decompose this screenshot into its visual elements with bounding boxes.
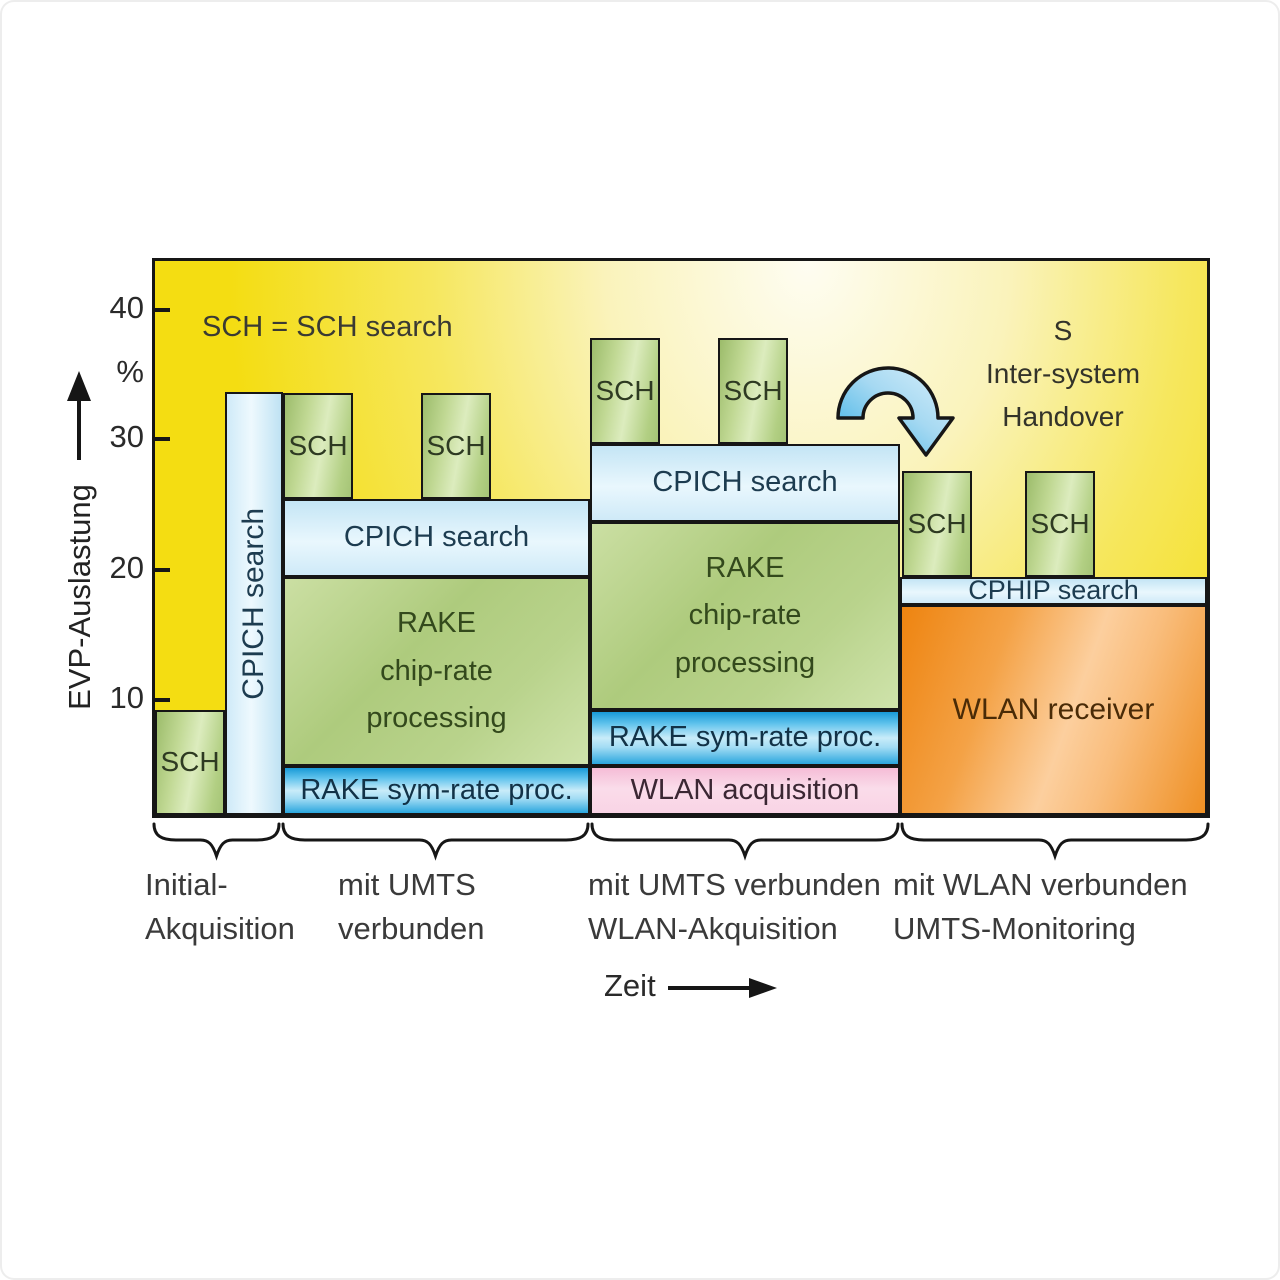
phase-caption-3: mit UMTS verbunden WLAN-Akquisition: [588, 863, 881, 951]
y-axis-title: EVP-Auslastung: [62, 484, 98, 710]
block-wlan-receiver: WLAN receiver: [900, 605, 1207, 815]
rake-line2: chip-rate: [675, 599, 815, 632]
rake-line2: chip-rate: [366, 655, 506, 688]
diagram-canvas: 40 % 30 20 10 EVP-Auslastung SCH = SCH s…: [0, 0, 1280, 1280]
block-wlan-acquisition: WLAN acquisition: [590, 766, 900, 815]
time-arrow-icon: [664, 974, 784, 1002]
plot-area: SCH = SCH search SCH CPICH search SCH SC…: [152, 258, 1210, 818]
legend-note: SCH = SCH search: [202, 311, 453, 344]
y-tick-10: [155, 698, 170, 702]
block-label: SCH: [1030, 508, 1089, 540]
caption-line: verbunden: [338, 907, 485, 951]
block-label: SCH: [288, 430, 347, 462]
y-tick-40: [155, 308, 170, 312]
block-sch-umts-1: SCH: [283, 393, 353, 499]
y-tick-label-40: 40: [84, 290, 144, 326]
block-sch-monitoring-2: SCH: [1025, 471, 1095, 577]
block-sch-monitoring-1: SCH: [902, 471, 972, 577]
handover-line-3: Handover: [913, 395, 1213, 438]
block-label: WLAN acquisition: [631, 774, 860, 807]
block-label: WLAN receiver: [953, 693, 1155, 728]
rake-line1: RAKE: [675, 552, 815, 585]
y-tick-30: [155, 437, 170, 441]
caption-line: WLAN-Akquisition: [588, 907, 881, 951]
caption-line: mit WLAN verbunden: [893, 863, 1188, 907]
block-cphip-search: CPHIP search: [900, 577, 1207, 605]
brace-umts-monitoring: [902, 824, 1208, 856]
block-cpich-search-vertical: CPICH search: [225, 392, 283, 815]
block-label: RAKE sym-rate proc.: [300, 774, 572, 807]
handover-line-1: S: [913, 309, 1213, 352]
brace-wlan-akquisition: [592, 824, 898, 856]
caption-line: mit UMTS verbunden: [588, 863, 881, 907]
block-sch-wlanacq-2: SCH: [718, 338, 788, 444]
x-axis-title: Zeit: [604, 968, 656, 1004]
block-label: SCH: [907, 508, 966, 540]
phase-caption-4: mit WLAN verbunden UMTS-Monitoring: [893, 863, 1188, 951]
y-tick-20: [155, 568, 170, 572]
block-cpich-search-umts: CPICH search: [283, 499, 590, 577]
block-label: CPICH search: [344, 521, 529, 554]
rake-line1: RAKE: [366, 607, 506, 640]
y-axis-arrow-icon: [64, 368, 94, 464]
block-sch-initial: SCH: [155, 710, 225, 815]
phase-caption-1: Initial- Akquisition: [145, 863, 295, 951]
block-rake-chip-rate-wlanacq: RAKE chip-rate processing: [590, 522, 900, 710]
block-rake-sym-rate-wlanacq: RAKE sym-rate proc.: [590, 710, 900, 766]
block-rake-chip-rate-umts: RAKE chip-rate processing: [283, 577, 590, 766]
brace-initial-akquisition: [154, 824, 279, 856]
brace-umts-verbunden: [283, 824, 588, 856]
caption-line: Initial-: [145, 863, 295, 907]
block-label: RAKE chip-rate processing: [675, 552, 815, 680]
block-label: RAKE chip-rate processing: [366, 607, 506, 735]
phase-caption-2: mit UMTS verbunden: [338, 863, 485, 951]
caption-line: Akquisition: [145, 907, 295, 951]
block-sch-umts-2: SCH: [421, 393, 491, 499]
handover-note: S Inter-system Handover: [913, 309, 1213, 438]
rake-line3: processing: [366, 702, 506, 735]
block-label: CPHIP search: [968, 575, 1139, 606]
handover-line-2: Inter-system: [913, 352, 1213, 395]
block-label: RAKE sym-rate proc.: [609, 721, 881, 754]
block-label: SCH: [426, 430, 485, 462]
block-label: SCH: [723, 375, 782, 407]
block-label: CPICH search: [237, 508, 272, 700]
block-label: CPICH search: [652, 466, 837, 499]
block-label: SCH: [160, 746, 219, 778]
caption-line: UMTS-Monitoring: [893, 907, 1188, 951]
phase-braces: [152, 820, 1210, 862]
block-rake-sym-rate-umts: RAKE sym-rate proc.: [283, 766, 590, 815]
rake-line3: processing: [675, 647, 815, 680]
caption-line: mit UMTS: [338, 863, 485, 907]
block-label: SCH: [595, 375, 654, 407]
block-sch-wlanacq-1: SCH: [590, 338, 660, 444]
